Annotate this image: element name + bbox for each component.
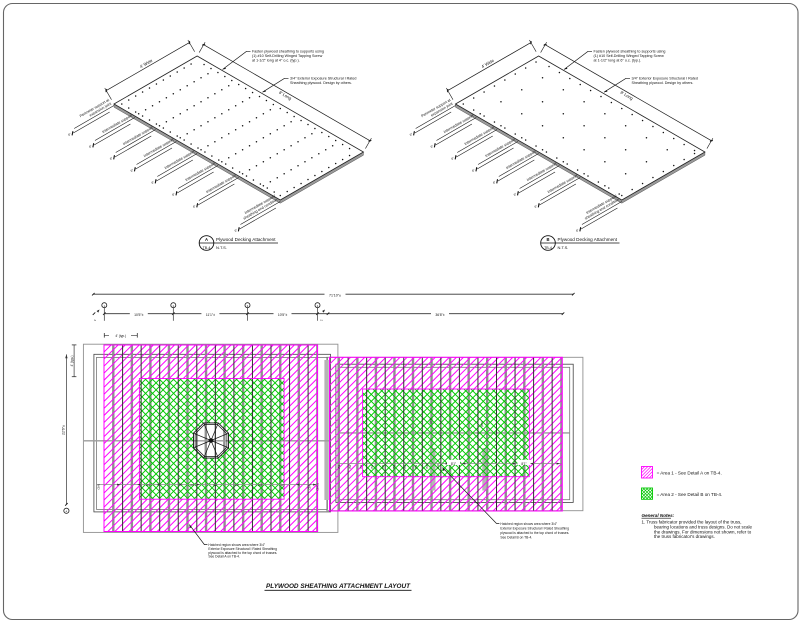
svg-text:4' (typ.): 4' (typ.) bbox=[115, 334, 126, 338]
svg-text:B11: B11 bbox=[436, 463, 440, 468]
svg-text:(3A): (3A) bbox=[97, 484, 101, 490]
svg-text:B4: B4 bbox=[370, 464, 374, 468]
svg-text:= Area 1 - See Detail A on TB-: = Area 1 - See Detail A on TB-4. bbox=[657, 470, 722, 475]
svg-text:22'6"±: 22'6"± bbox=[61, 425, 65, 435]
svg-text:B1: B1 bbox=[403, 464, 407, 468]
svg-text:Fasten plywood sheathing to su: Fasten plywood sheathing to supports usi… bbox=[594, 50, 666, 54]
svg-text:B2: B2 bbox=[348, 464, 352, 468]
svg-text:See Detail A on TB-4.: See Detail A on TB-4. bbox=[208, 555, 240, 559]
svg-text:bearing locations and truss de: bearing locations and truss designs. Do … bbox=[654, 524, 753, 529]
svg-text:B3: B3 bbox=[359, 464, 363, 468]
svg-text:11'1"±: 11'1"± bbox=[206, 313, 215, 317]
svg-text:3/4" Exterior Exposure Structu: 3/4" Exterior Exposure Structural I Rate… bbox=[290, 77, 357, 81]
svg-text:(1) #10 Self-Drilling Winged T: (1) #10 Self-Drilling Winged Tapping Scr… bbox=[252, 54, 323, 58]
svg-text:B9: B9 bbox=[414, 464, 418, 468]
svg-text:N.T.S.: N.T.S. bbox=[558, 245, 569, 250]
svg-text:B1: B1 bbox=[392, 464, 396, 468]
svg-text:(3A): (3A) bbox=[308, 484, 312, 490]
svg-text:plywood is attached to the top: plywood is attached to the top chord of … bbox=[500, 531, 569, 535]
svg-text:A: A bbox=[205, 237, 208, 242]
svg-text:at 1-1/2" long at 4" o.c. (typ: at 1-1/2" long at 4" o.c. (typ.). bbox=[252, 58, 300, 62]
svg-text:B1: B1 bbox=[337, 464, 341, 468]
svg-text:Hatched region shows area wher: Hatched region shows area where 3/4" bbox=[208, 543, 266, 547]
svg-text:36'8"±: 36'8"± bbox=[435, 313, 445, 317]
svg-text:A1: A1 bbox=[146, 483, 150, 487]
svg-text:B5: B5 bbox=[381, 464, 385, 468]
svg-text:Exterior Exposure Structural I: Exterior Exposure Structural I Rated She… bbox=[208, 547, 277, 551]
svg-text:See Detail B on TB-4.: See Detail B on TB-4. bbox=[500, 535, 532, 539]
svg-text:A2: A2 bbox=[190, 483, 194, 487]
svg-text:1. Truss fabricator provide: 1. Truss fabricator provided the layout … bbox=[642, 519, 742, 524]
svg-text:= Area 2 - See Detail B on TB-: = Area 2 - See Detail B on TB-4. bbox=[657, 492, 723, 497]
svg-text:Fasten plywood sheathing to su: Fasten plywood sheathing to supports usi… bbox=[252, 50, 324, 54]
svg-text:(B6): (B6) bbox=[480, 421, 484, 427]
svg-text:(3A1): (3A1) bbox=[316, 483, 320, 490]
svg-text:71'10"±: 71'10"± bbox=[329, 293, 341, 297]
svg-text:at 1-1/2" long at 6" o.c. (typ: at 1-1/2" long at 6" o.c. (typ.). bbox=[594, 58, 642, 62]
svg-text:10'5"±: 10'5"± bbox=[278, 313, 288, 317]
svg-text:N.T.S.: N.T.S. bbox=[216, 245, 227, 250]
svg-text:plywood is attached to the top: plywood is attached to the top chord of … bbox=[208, 551, 277, 555]
svg-text:Sheathing plywood. Design by o: Sheathing plywood. Design by others. bbox=[290, 81, 352, 85]
svg-text:the truss fabricator's drawing: the truss fabricator's drawings. bbox=[654, 534, 715, 539]
svg-text:Plywood Decking Attachment: Plywood Decking Attachment bbox=[216, 237, 276, 242]
svg-text:(1) #10 Self-Drilling Winged T: (1) #10 Self-Drilling Winged Tapping Scr… bbox=[594, 54, 665, 58]
svg-text:Sheathing plywood. Design by o: Sheathing plywood. Design by others. bbox=[632, 81, 694, 85]
svg-text:A2: A2 bbox=[213, 483, 217, 487]
svg-text:the drawings. For dimensions: the drawings. For dimensions not shown, … bbox=[654, 529, 752, 534]
svg-text:8'1": 8'1" bbox=[521, 462, 526, 466]
svg-text:Plywood Decking Attachment: Plywood Decking Attachment bbox=[558, 237, 618, 242]
svg-text:4' (typ.): 4' (typ.) bbox=[70, 356, 74, 367]
svg-text:B10: B10 bbox=[425, 463, 429, 469]
svg-text:(B4): (B4) bbox=[429, 418, 433, 424]
svg-text:A1: A1 bbox=[281, 483, 285, 487]
svg-text:A2: A2 bbox=[235, 483, 239, 487]
svg-text:8'1": 8'1" bbox=[451, 462, 456, 466]
svg-text:Hatched region shows area wher: Hatched region shows area where 3/4" bbox=[500, 522, 558, 526]
svg-text:3/4" Exterior Exposure Structu: 3/4" Exterior Exposure Structural I Rate… bbox=[632, 77, 699, 81]
svg-text:TB-4: TB-4 bbox=[544, 246, 552, 250]
svg-text:PLYWOOD SHEATHING ATTACHMENT L: PLYWOOD SHEATHING ATTACHMENT LAYOUT bbox=[266, 583, 411, 590]
svg-text:Exterior Exposure Structural I: Exterior Exposure Structural I Rated She… bbox=[500, 526, 569, 530]
svg-text:TB-4: TB-4 bbox=[203, 246, 211, 250]
svg-text:A2: A2 bbox=[258, 483, 262, 487]
svg-text:10'5"±: 10'5"± bbox=[134, 313, 144, 317]
svg-text:B: B bbox=[546, 237, 549, 242]
svg-text:General Notes:: General Notes: bbox=[642, 513, 675, 518]
